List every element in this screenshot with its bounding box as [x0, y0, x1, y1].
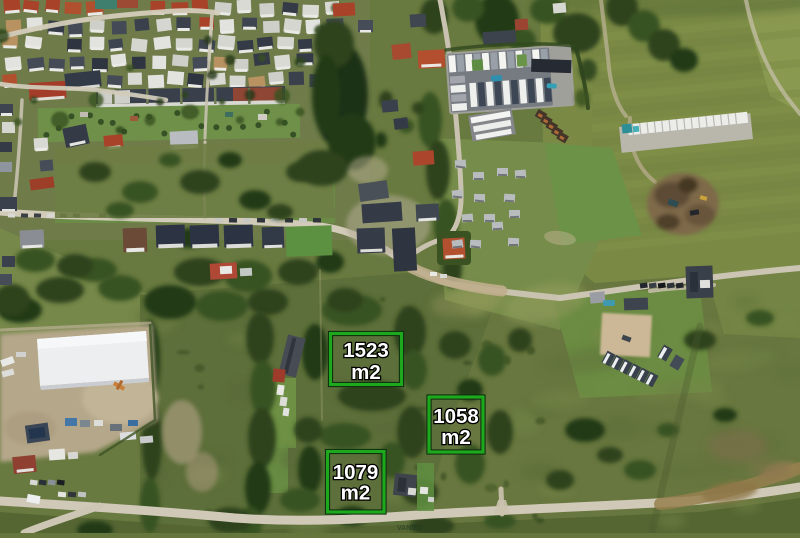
svg-text:m2: m2 — [341, 482, 371, 505]
svg-text:1523: 1523 — [343, 339, 389, 362]
svg-text:m2: m2 — [351, 361, 381, 384]
svg-text:VANDO: VANDO — [397, 525, 422, 532]
svg-text:m2: m2 — [441, 426, 471, 449]
svg-text:1058: 1058 — [433, 405, 479, 428]
